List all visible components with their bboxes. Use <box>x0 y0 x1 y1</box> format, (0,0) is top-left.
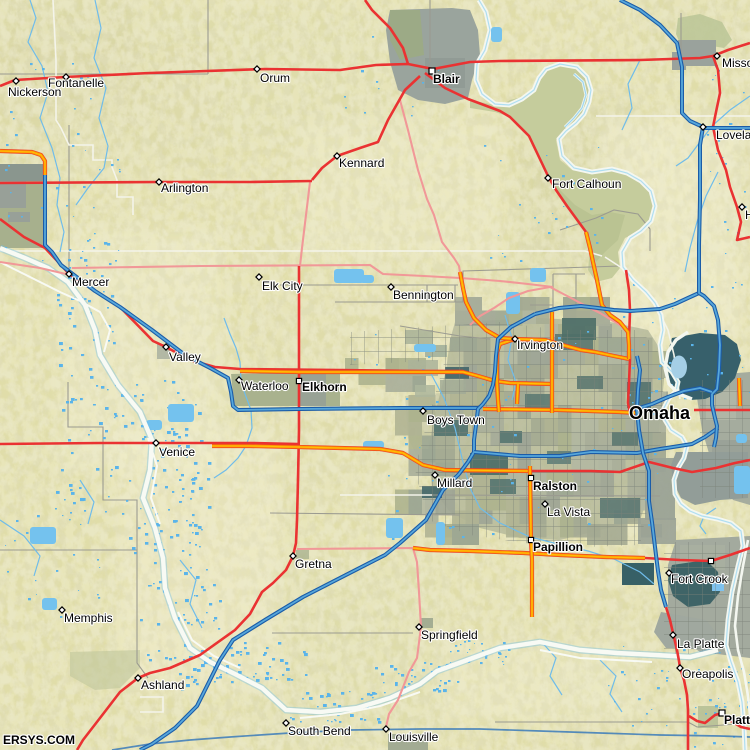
svg-text:Springfield: Springfield <box>421 628 478 642</box>
svg-text:Elkhorn: Elkhorn <box>302 380 347 394</box>
svg-text:H: H <box>745 208 750 222</box>
svg-text:Fort Crook: Fort Crook <box>671 572 729 586</box>
svg-text:Papillion: Papillion <box>533 540 583 554</box>
svg-text:Arlington: Arlington <box>161 181 208 195</box>
svg-text:Millard: Millard <box>437 476 472 490</box>
svg-text:Venice: Venice <box>159 445 195 459</box>
svg-text:Mercer: Mercer <box>72 275 109 289</box>
svg-text:ERSYS.COM: ERSYS.COM <box>3 733 75 747</box>
svg-text:Louisville: Louisville <box>389 730 439 744</box>
svg-text:Valley: Valley <box>169 350 201 364</box>
svg-text:Kennard: Kennard <box>339 156 384 170</box>
svg-text:Ralston: Ralston <box>533 479 577 493</box>
svg-text:Waterloo: Waterloo <box>241 379 289 393</box>
svg-text:Gretna: Gretna <box>295 557 332 571</box>
svg-text:Omaha: Omaha <box>629 403 691 423</box>
svg-text:La Vista: La Vista <box>547 505 590 519</box>
svg-text:South Bend: South Bend <box>288 724 351 738</box>
svg-text:Missouri: Missouri <box>722 56 750 70</box>
svg-text:Plattsmouth: Plattsmouth <box>724 713 750 727</box>
svg-text:Elk City: Elk City <box>262 279 303 293</box>
svg-text:Bennington: Bennington <box>393 288 454 302</box>
svg-text:Oreapolis: Oreapolis <box>682 667 733 681</box>
svg-text:Fontanelle: Fontanelle <box>48 76 104 90</box>
svg-text:Ashland: Ashland <box>141 678 184 692</box>
svg-text:Orum: Orum <box>260 71 290 85</box>
svg-text:Irvington: Irvington <box>517 338 563 352</box>
svg-text:La Platte: La Platte <box>677 637 725 651</box>
svg-text:Memphis: Memphis <box>64 611 113 625</box>
svg-text:Blair: Blair <box>433 72 460 86</box>
svg-text:Fort Calhoun: Fort Calhoun <box>552 177 621 191</box>
svg-text:Boys Town: Boys Town <box>427 413 485 427</box>
svg-text:Loveland: Loveland <box>716 128 750 142</box>
